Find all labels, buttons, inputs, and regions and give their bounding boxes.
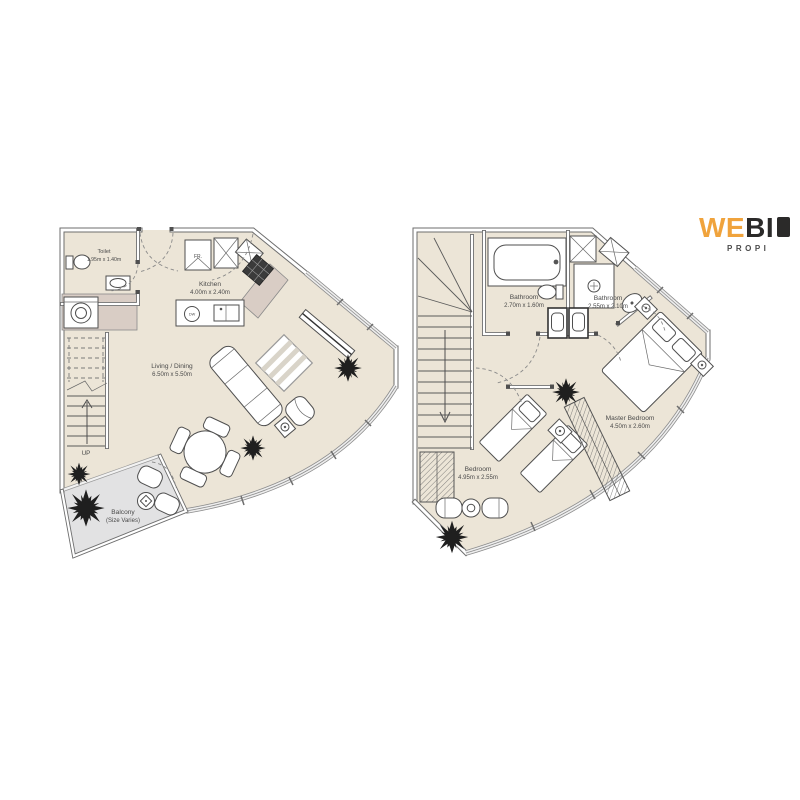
plant-icon — [436, 521, 468, 553]
toilet-cistern — [66, 256, 73, 269]
balcony-label: Balcony — [111, 509, 135, 516]
right-plan: Bathroom 2.70m x 1.60m — [415, 230, 713, 553]
lounge-chair — [436, 498, 462, 518]
kitchen-dims: 4.00m x 2.40m — [190, 290, 230, 296]
lounge-chair — [482, 498, 508, 518]
bedroom-label: Bedroom — [465, 466, 492, 473]
brand-logo: WEBI PROPI — [699, 214, 790, 253]
round-table — [462, 499, 480, 517]
wardrobe — [420, 452, 454, 502]
brand-part2: BI — [745, 212, 774, 243]
bedroom-dims: 4.95m x 2.55m — [458, 475, 498, 481]
brand-part1: WE — [699, 212, 745, 243]
kitchen-sink — [214, 305, 239, 321]
bathroom2-dims: 2.55m x 2.10m — [588, 304, 628, 310]
master-label: Master Bedroom — [606, 415, 655, 422]
plant-icon — [334, 354, 362, 382]
bathroom1-label: Bathroom — [510, 294, 539, 301]
bathroom2-label: Bathroom — [594, 295, 623, 302]
living-label: Living / Dining — [151, 363, 193, 370]
floorplan-page: Toilet 1.95m x 1.40m — [0, 0, 800, 800]
floor-plans-canvas: Toilet 1.95m x 1.40m — [0, 0, 800, 800]
vanity-basin — [548, 308, 567, 338]
kitchen-label: Kitchen — [199, 281, 221, 288]
brand-wordmark: WEBI — [699, 212, 790, 243]
toilet-dims: 1.95m x 1.40m — [87, 257, 121, 263]
living-dims: 6.50m x 5.50m — [152, 372, 192, 378]
shaft-box — [570, 236, 596, 262]
shaft-box — [214, 238, 238, 268]
left-plan: Toilet 1.95m x 1.40m — [62, 227, 396, 556]
plant-icon — [68, 463, 91, 486]
plant-icon — [552, 378, 580, 406]
balcony-table — [138, 493, 155, 510]
toilet-bowl — [538, 285, 556, 299]
fridge-label: FR. — [194, 254, 202, 260]
master-dims: 4.50m x 2.60m — [610, 424, 650, 430]
vanity-basin — [569, 308, 588, 338]
toilet-label: Toilet — [97, 249, 111, 255]
dishwasher-label: DW — [189, 313, 196, 317]
brand-tagline: PROPI — [727, 245, 790, 253]
toilet-cistern — [556, 285, 563, 299]
laundry-nook — [64, 297, 98, 328]
plant-icon — [240, 435, 265, 460]
stairs-up-label: UP — [82, 450, 91, 457]
bathroom1-dims: 2.70m x 1.60m — [504, 303, 544, 309]
plant-icon — [67, 489, 104, 526]
balcony-dims: (Size Varies) — [106, 518, 140, 524]
clipped-letter-fragment — [777, 217, 790, 237]
